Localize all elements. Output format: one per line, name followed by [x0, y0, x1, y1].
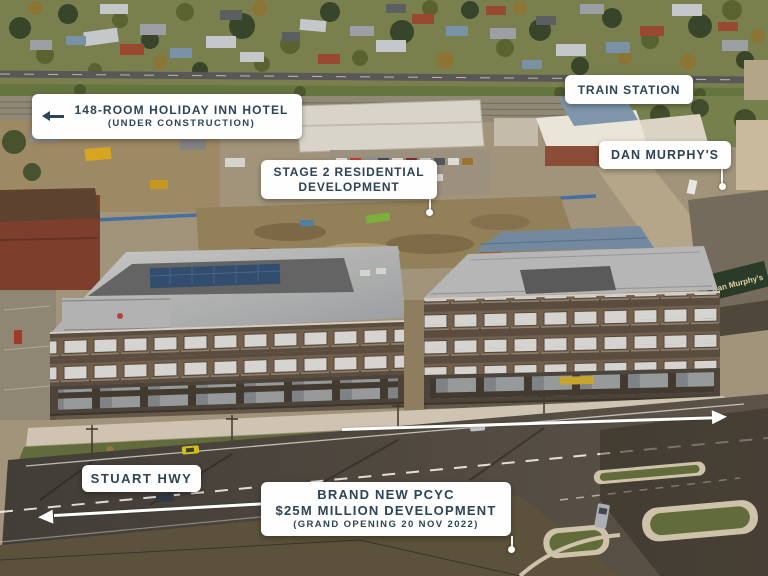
label-stage2-development: STAGE 2 RESIDENTIAL DEVELOPMENT — [261, 160, 437, 199]
pcyc-leader-dot — [508, 546, 515, 553]
stage2-leader-dot — [426, 209, 433, 216]
label-dan-murphys: DAN MURPHY'S — [599, 141, 731, 169]
train-station-text: TRAIN STATION — [578, 82, 681, 98]
left-arrow-icon — [50, 115, 64, 118]
dan-murphys-leader-dot — [719, 183, 726, 190]
label-stuart-hwy: STUART HWY — [82, 465, 201, 492]
label-train-station: TRAIN STATION — [565, 75, 693, 104]
stage2-line1: STAGE 2 RESIDENTIAL — [274, 165, 425, 180]
dan-murphys-text: DAN MURPHY'S — [611, 147, 719, 163]
pcyc-line1: BRAND NEW PCYC — [317, 487, 454, 503]
stage2-line2: DEVELOPMENT — [298, 180, 399, 195]
highway-arrow-left-icon — [38, 510, 54, 525]
label-pcyc-development: BRAND NEW PCYC $25M MILLION DEVELOPMENT … — [261, 482, 511, 536]
holiday-inn-title: 148-ROOM HOLIDAY INN HOTEL — [75, 103, 289, 118]
stuart-hwy-text: STUART HWY — [91, 471, 193, 487]
aerial-promo-image: Dan Murphy's — [0, 0, 768, 576]
pcyc-line2: $25M MILLION DEVELOPMENT — [276, 503, 497, 519]
highway-arrow-right-icon — [712, 410, 727, 424]
pcyc-line3: (GRAND OPENING 20 NOV 2022) — [293, 519, 479, 531]
label-holiday-inn: 148-ROOM HOLIDAY INN HOTEL (UNDER CONSTR… — [32, 94, 302, 139]
holiday-inn-subtitle: (UNDER CONSTRUCTION) — [108, 118, 255, 130]
